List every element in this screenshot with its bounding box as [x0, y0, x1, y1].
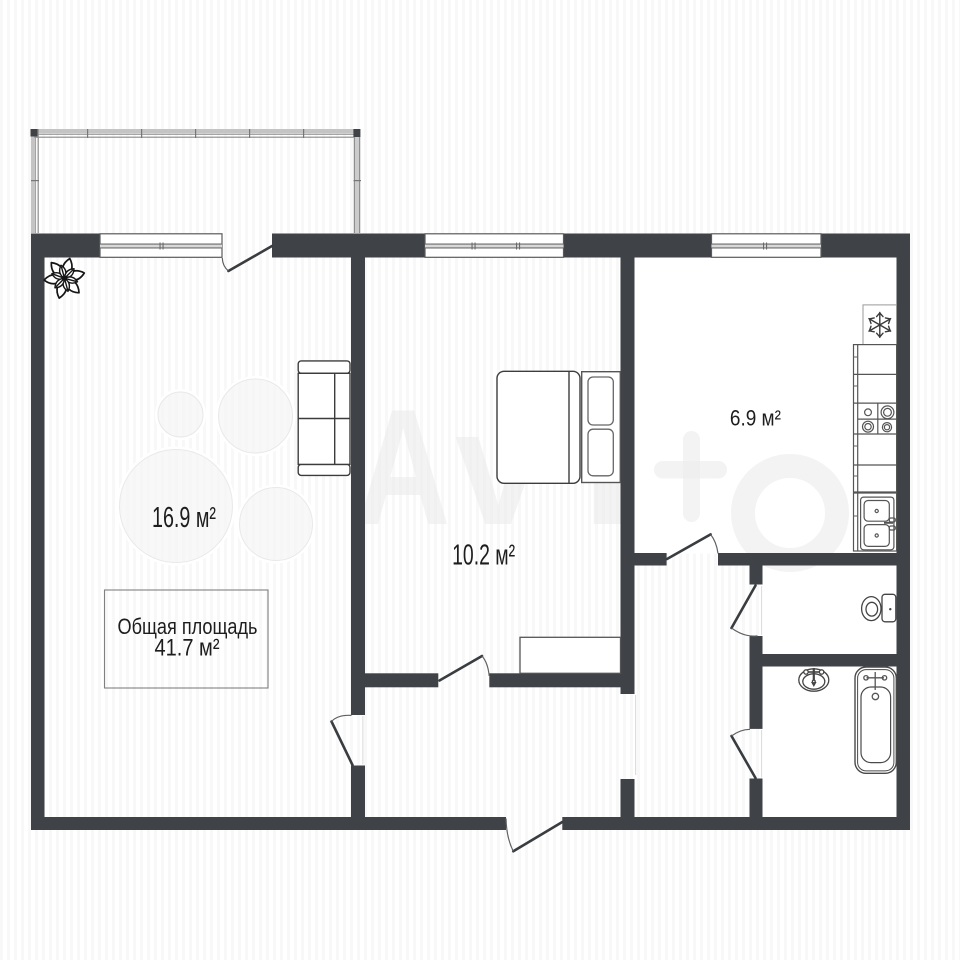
svg-text:6.9 м²: 6.9 м² [730, 406, 781, 431]
svg-text:10.2 м²: 10.2 м² [452, 540, 515, 572]
svg-text:16.9 м²: 16.9 м² [152, 502, 216, 534]
svg-text:A: A [356, 374, 450, 559]
svg-text:41.7 м²: 41.7 м² [155, 635, 220, 662]
